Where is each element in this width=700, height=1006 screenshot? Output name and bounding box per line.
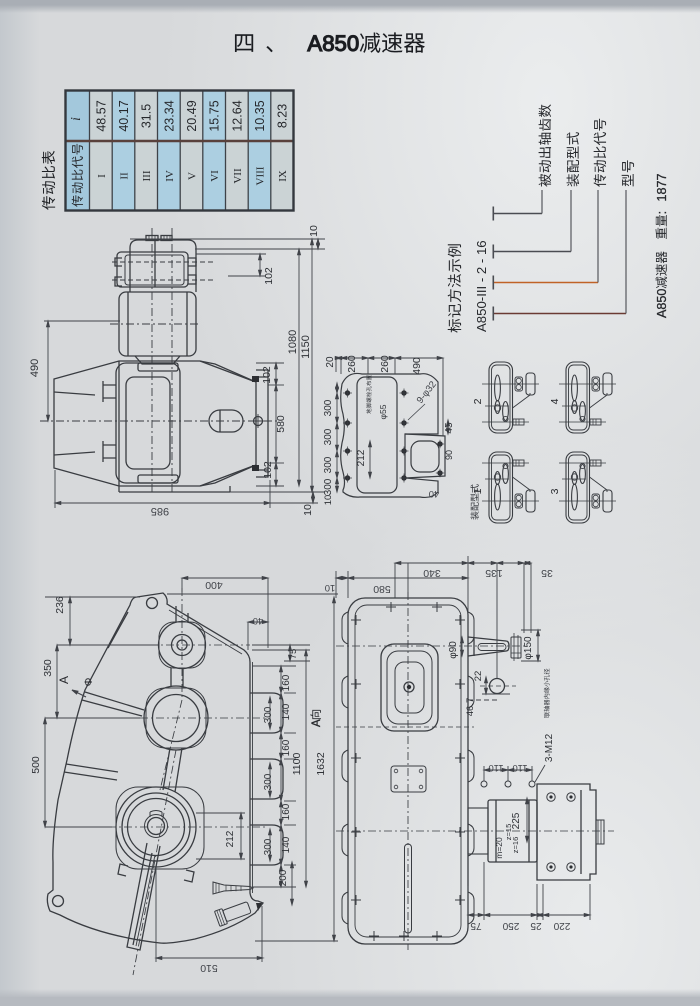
svg-text:2: 2 — [472, 398, 484, 404]
svg-text:1100: 1100 — [291, 753, 303, 776]
svg-text:12.64: 12.64 — [230, 100, 244, 131]
svg-text:102: 102 — [261, 366, 273, 384]
svg-text:110: 110 — [512, 762, 527, 773]
svg-text:m=20: m=20 — [494, 837, 504, 859]
svg-text:10.35: 10.35 — [253, 100, 267, 131]
svg-text:90: 90 — [444, 450, 454, 460]
svg-text:10: 10 — [325, 582, 336, 593]
svg-text:48.57: 48.57 — [94, 100, 108, 131]
svg-text:10: 10 — [302, 504, 314, 516]
svg-text:300: 300 — [323, 456, 334, 473]
svg-text:300: 300 — [263, 706, 274, 723]
svg-text:490: 490 — [411, 357, 423, 375]
svg-text:1080: 1080 — [287, 330, 299, 354]
svg-text::: : — [655, 211, 669, 215]
svg-text:260: 260 — [379, 355, 391, 373]
svg-text:300: 300 — [323, 399, 334, 416]
svg-text:20: 20 — [325, 356, 336, 368]
svg-text:160: 160 — [281, 803, 292, 820]
svg-text:500: 500 — [30, 756, 42, 774]
svg-text:II: II — [119, 172, 131, 180]
svg-text:160: 160 — [281, 674, 292, 691]
svg-text:220: 220 — [553, 920, 570, 931]
svg-text:A850: A850 — [655, 289, 669, 318]
svg-text:φ90: φ90 — [448, 641, 459, 659]
svg-text:IX: IX — [277, 170, 289, 182]
svg-text:340: 340 — [423, 567, 441, 579]
svg-text:VIII: VIII — [255, 166, 267, 185]
svg-text:45: 45 — [444, 422, 455, 434]
svg-text:40: 40 — [253, 615, 264, 626]
svg-text:A850-III - 2 - 16: A850-III - 2 - 16 — [474, 240, 489, 332]
svg-text:8.23: 8.23 — [276, 104, 290, 128]
svg-text:300: 300 — [263, 773, 274, 790]
svg-text:V: V — [187, 172, 199, 180]
svg-text:236: 236 — [54, 596, 66, 614]
svg-text:IV: IV — [164, 170, 176, 182]
svg-text:400: 400 — [205, 579, 223, 591]
svg-text:3: 3 — [549, 488, 561, 494]
svg-text:510: 510 — [200, 962, 218, 974]
svg-text:46.7: 46.7 — [465, 698, 476, 717]
svg-text:350: 350 — [42, 659, 54, 677]
svg-text:VII: VII — [232, 168, 244, 184]
svg-text:φ55: φ55 — [378, 404, 388, 419]
svg-text:A: A — [57, 676, 71, 684]
svg-text:1632: 1632 — [315, 752, 327, 776]
svg-text:40: 40 — [429, 488, 440, 499]
svg-text:75: 75 — [470, 920, 482, 931]
svg-text:A: A — [311, 719, 323, 727]
svg-text:102: 102 — [262, 461, 274, 479]
svg-text:10: 10 — [308, 225, 320, 237]
svg-text:140: 140 — [281, 703, 292, 720]
svg-text:140: 140 — [281, 836, 292, 853]
svg-text:40.17: 40.17 — [117, 100, 131, 131]
svg-text:212: 212 — [225, 830, 236, 847]
svg-text:300: 300 — [263, 838, 274, 855]
svg-text:35: 35 — [541, 567, 553, 579]
svg-text:102: 102 — [263, 267, 275, 285]
svg-text:490: 490 — [29, 359, 41, 377]
svg-text:135: 135 — [485, 567, 503, 579]
svg-text:300: 300 — [323, 428, 334, 445]
svg-text:1877: 1877 — [655, 173, 669, 201]
svg-text:200: 200 — [278, 869, 289, 886]
svg-text:580: 580 — [275, 415, 287, 433]
svg-text:23.34: 23.34 — [162, 100, 176, 131]
svg-text:φ150: φ150 — [523, 636, 534, 660]
svg-text:15.75: 15.75 — [208, 100, 222, 131]
svg-text:Φ: Φ — [83, 677, 95, 686]
svg-text:31.5: 31.5 — [140, 104, 154, 128]
svg-text:VI: VI — [209, 170, 221, 182]
svg-text:A850: A850 — [307, 31, 359, 56]
svg-text:1150: 1150 — [300, 335, 312, 359]
svg-text:75: 75 — [288, 649, 299, 660]
svg-text:III: III — [141, 170, 153, 181]
svg-text:580: 580 — [373, 583, 391, 595]
svg-text:985: 985 — [151, 505, 169, 517]
svg-text:212: 212 — [356, 449, 367, 466]
svg-text:i: i — [68, 117, 83, 121]
svg-text:z=16: z=16 — [511, 837, 520, 853]
svg-text:260: 260 — [346, 355, 358, 373]
svg-text:300: 300 — [323, 478, 334, 495]
svg-text:110: 110 — [488, 762, 503, 773]
svg-text:250: 250 — [502, 920, 519, 931]
svg-text:22: 22 — [473, 671, 484, 682]
svg-text:I: I — [96, 174, 108, 178]
svg-text:10: 10 — [323, 495, 334, 506]
svg-text:3-M12: 3-M12 — [544, 733, 555, 762]
svg-text:25: 25 — [530, 920, 542, 931]
svg-text:20.49: 20.49 — [185, 100, 199, 131]
svg-text:4: 4 — [549, 398, 561, 404]
